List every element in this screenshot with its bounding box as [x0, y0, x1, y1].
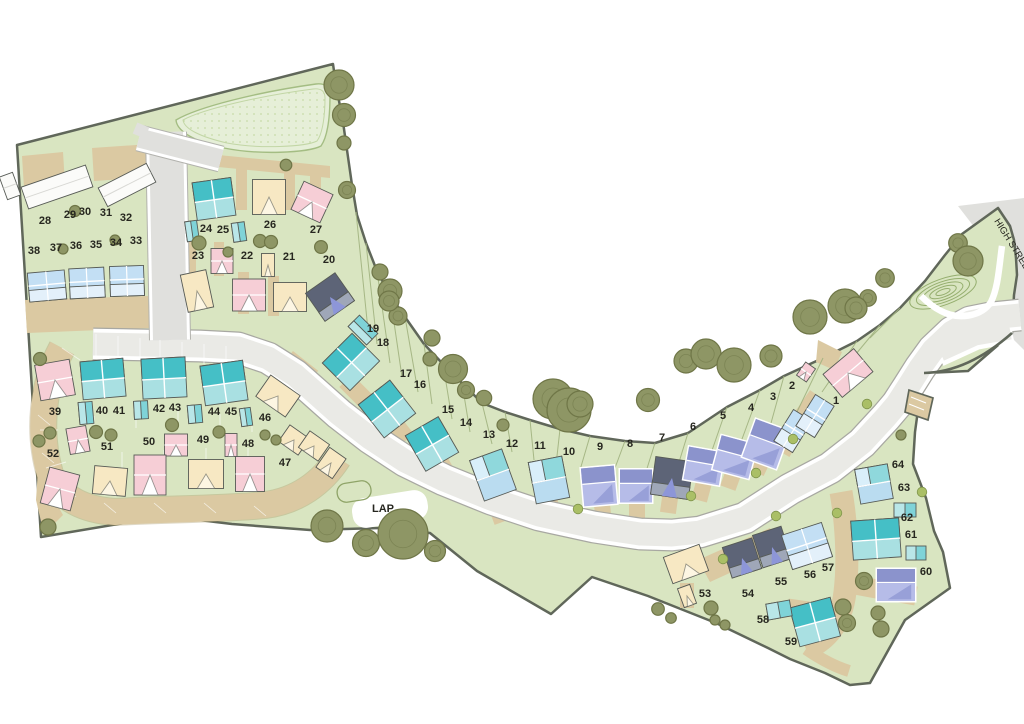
svg-text:54: 54 [742, 588, 755, 600]
svg-text:30: 30 [79, 206, 91, 218]
svg-text:11: 11 [534, 440, 546, 452]
svg-text:2: 2 [789, 380, 795, 392]
svg-text:63: 63 [898, 482, 910, 494]
svg-text:61: 61 [905, 529, 917, 541]
svg-text:20: 20 [323, 254, 335, 266]
svg-text:18: 18 [377, 337, 389, 349]
svg-text:57: 57 [822, 562, 834, 574]
svg-text:1: 1 [833, 395, 839, 407]
svg-text:29: 29 [64, 209, 76, 221]
svg-text:25: 25 [217, 224, 229, 236]
svg-text:3: 3 [770, 391, 776, 403]
svg-text:45: 45 [225, 406, 237, 418]
svg-text:59: 59 [785, 636, 797, 648]
svg-text:42: 42 [153, 403, 165, 415]
svg-text:26: 26 [264, 219, 276, 231]
svg-text:60: 60 [920, 566, 932, 578]
svg-text:34: 34 [110, 237, 123, 249]
svg-text:49: 49 [197, 434, 209, 446]
svg-text:41: 41 [113, 405, 125, 417]
svg-text:7: 7 [659, 432, 665, 444]
svg-text:46: 46 [259, 412, 271, 424]
svg-text:8: 8 [627, 438, 633, 450]
svg-text:6: 6 [690, 421, 696, 433]
svg-text:38: 38 [28, 245, 40, 257]
svg-text:32: 32 [120, 212, 132, 224]
svg-text:5: 5 [720, 410, 726, 422]
svg-text:16: 16 [414, 379, 426, 391]
svg-text:27: 27 [310, 224, 322, 236]
svg-text:24: 24 [200, 223, 213, 235]
svg-text:37: 37 [50, 242, 62, 254]
svg-text:LAP: LAP [372, 503, 394, 515]
svg-text:19: 19 [367, 323, 379, 335]
svg-text:52: 52 [47, 448, 59, 460]
svg-text:36: 36 [70, 240, 82, 252]
svg-text:33: 33 [130, 235, 142, 247]
svg-text:4: 4 [748, 402, 755, 414]
svg-text:9: 9 [597, 441, 603, 453]
svg-text:39: 39 [49, 406, 61, 418]
svg-text:35: 35 [90, 239, 102, 251]
svg-text:51: 51 [101, 441, 113, 453]
svg-text:28: 28 [39, 215, 51, 227]
svg-text:58: 58 [757, 614, 769, 626]
svg-text:44: 44 [208, 406, 221, 418]
svg-text:62: 62 [901, 512, 913, 524]
svg-text:21: 21 [283, 251, 295, 263]
svg-text:53: 53 [699, 588, 711, 600]
svg-text:17: 17 [400, 368, 412, 380]
svg-text:56: 56 [804, 569, 816, 581]
svg-text:13: 13 [483, 429, 495, 441]
svg-text:64: 64 [892, 459, 905, 471]
svg-text:14: 14 [460, 417, 473, 429]
svg-text:10: 10 [563, 446, 575, 458]
svg-text:47: 47 [279, 457, 291, 469]
svg-text:48: 48 [242, 438, 254, 450]
svg-text:23: 23 [192, 250, 204, 262]
svg-text:43: 43 [169, 402, 181, 414]
svg-text:31: 31 [100, 207, 112, 219]
svg-text:50: 50 [143, 436, 155, 448]
svg-text:55: 55 [775, 576, 787, 588]
svg-text:15: 15 [442, 404, 454, 416]
svg-text:40: 40 [96, 405, 108, 417]
svg-text:22: 22 [241, 250, 253, 262]
svg-text:12: 12 [506, 438, 518, 450]
